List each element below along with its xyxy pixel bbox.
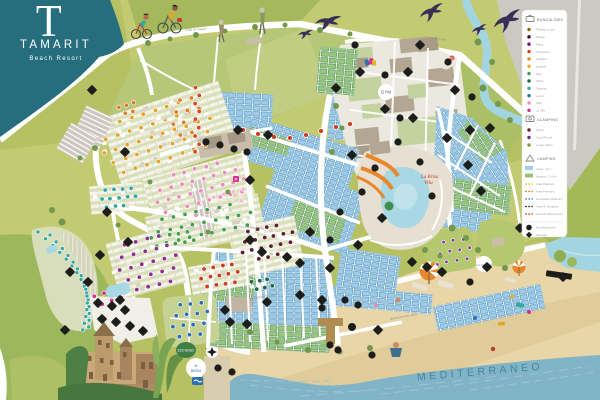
svg-text:Large +90m: Large +90m xyxy=(536,167,552,171)
svg-text:Area Platinum: Area Platinum xyxy=(536,182,555,186)
svg-text:TAMARIT: TAMARIT xyxy=(20,39,92,51)
svg-text:Picasso Junior: Picasso Junior xyxy=(536,28,555,32)
svg-text:CAMPING: CAMPING xyxy=(537,157,556,161)
svg-text:Noa: Noa xyxy=(536,72,542,76)
svg-text:Levico: Levico xyxy=(536,94,545,98)
svg-text:BRISA: BRISA xyxy=(191,369,202,373)
svg-text:ECO BOSC: ECO BOSC xyxy=(178,349,196,353)
svg-text:Vila: Vila xyxy=(424,180,433,186)
svg-text:Beach Resort: Beach Resort xyxy=(29,56,82,62)
svg-text:La Vila: La Vila xyxy=(536,109,545,113)
svg-text:Medium 70-90m: Medium 70-90m xyxy=(536,175,557,179)
svg-text:Area 40 (shaded): Area 40 (shaded) xyxy=(536,205,558,209)
svg-text:Lodge Safari: Lodge Safari xyxy=(536,143,553,147)
svg-text:Playa: Playa xyxy=(536,42,544,46)
svg-text:Oda: Oda xyxy=(536,101,542,105)
svg-text:P: P xyxy=(234,177,237,182)
svg-text:Mango: Mango xyxy=(536,35,545,39)
svg-text:Tamarindo: Tamarindo xyxy=(536,50,550,54)
svg-text:la: la xyxy=(194,363,197,368)
svg-text:GLAMPING: GLAMPING xyxy=(537,118,558,122)
svg-text:Area 40 (West Gold): Area 40 (West Gold) xyxy=(536,212,562,216)
svg-text:Aloha: Aloha xyxy=(536,79,544,83)
svg-text:GYM: GYM xyxy=(381,90,392,95)
svg-text:Tahama: Tahama xyxy=(536,87,547,91)
svg-text:Kenia: Kenia xyxy=(536,128,544,132)
svg-text:Oceanside Platinum: Oceanside Platinum xyxy=(536,197,562,201)
svg-text:Area Premium: Area Premium xyxy=(536,190,555,194)
svg-text:Establishments: Establishments xyxy=(536,226,556,230)
svg-text:Services: Services xyxy=(536,233,548,237)
svg-text:Levante: Levante xyxy=(536,64,547,68)
svg-text:Catalina: Catalina xyxy=(536,57,547,61)
svg-text:BUNGALOWS: BUNGALOWS xyxy=(537,18,563,22)
svg-text:Coco Resort: Coco Resort xyxy=(536,136,552,140)
